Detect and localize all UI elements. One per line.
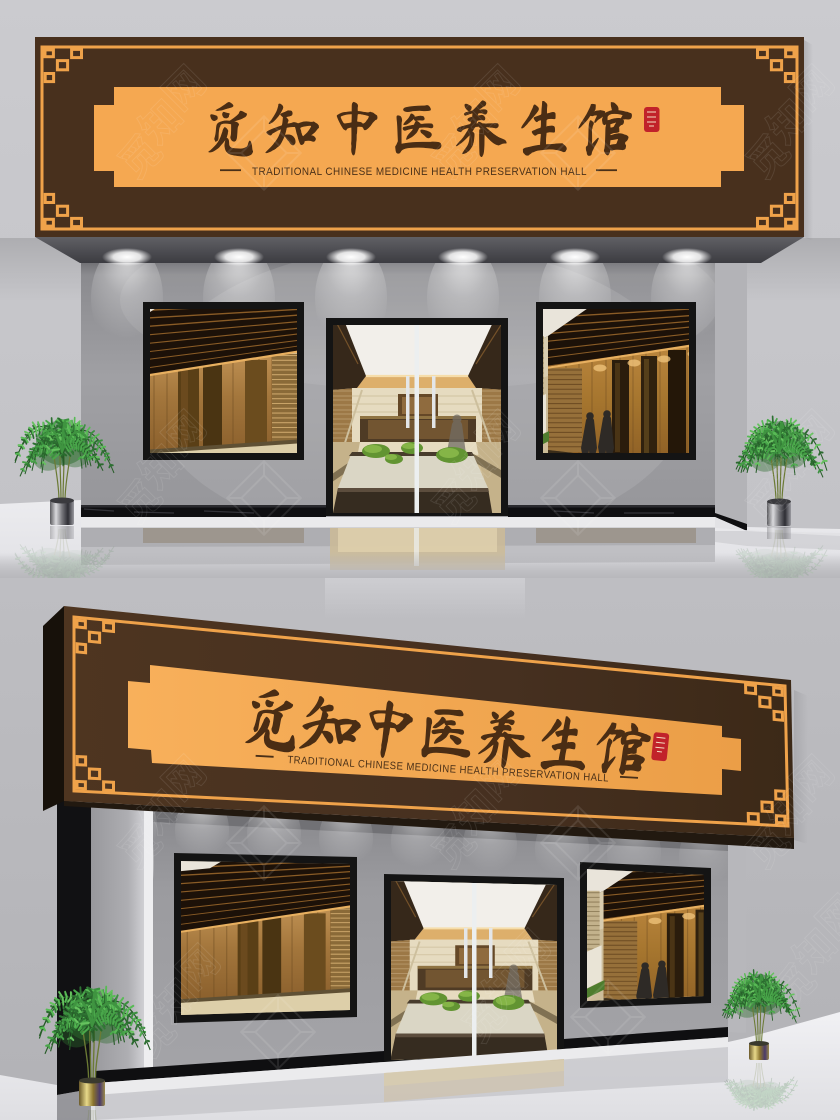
svg-text:TRADITIONAL CHINESE MEDICINE H: TRADITIONAL CHINESE MEDICINE HEALTH PRES… <box>252 166 587 178</box>
